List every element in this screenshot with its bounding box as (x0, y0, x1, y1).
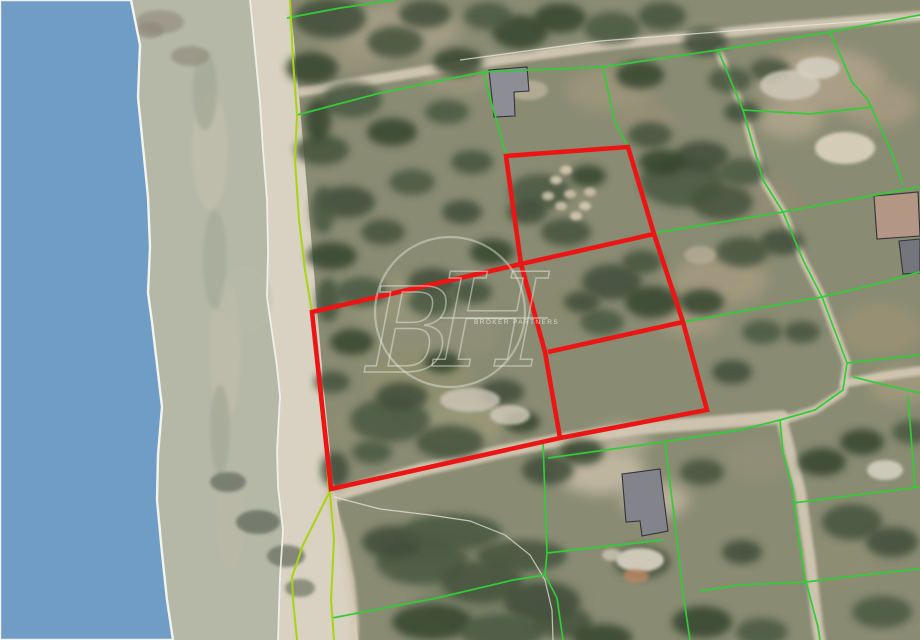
house-east-dark (899, 239, 920, 274)
satellite-map: BH (0, 0, 920, 640)
house-east-tan (874, 192, 920, 239)
aerial-photo: BH BROKER PARTNERS (0, 0, 920, 640)
watermark-text: BROKER PARTNERS (474, 320, 564, 327)
